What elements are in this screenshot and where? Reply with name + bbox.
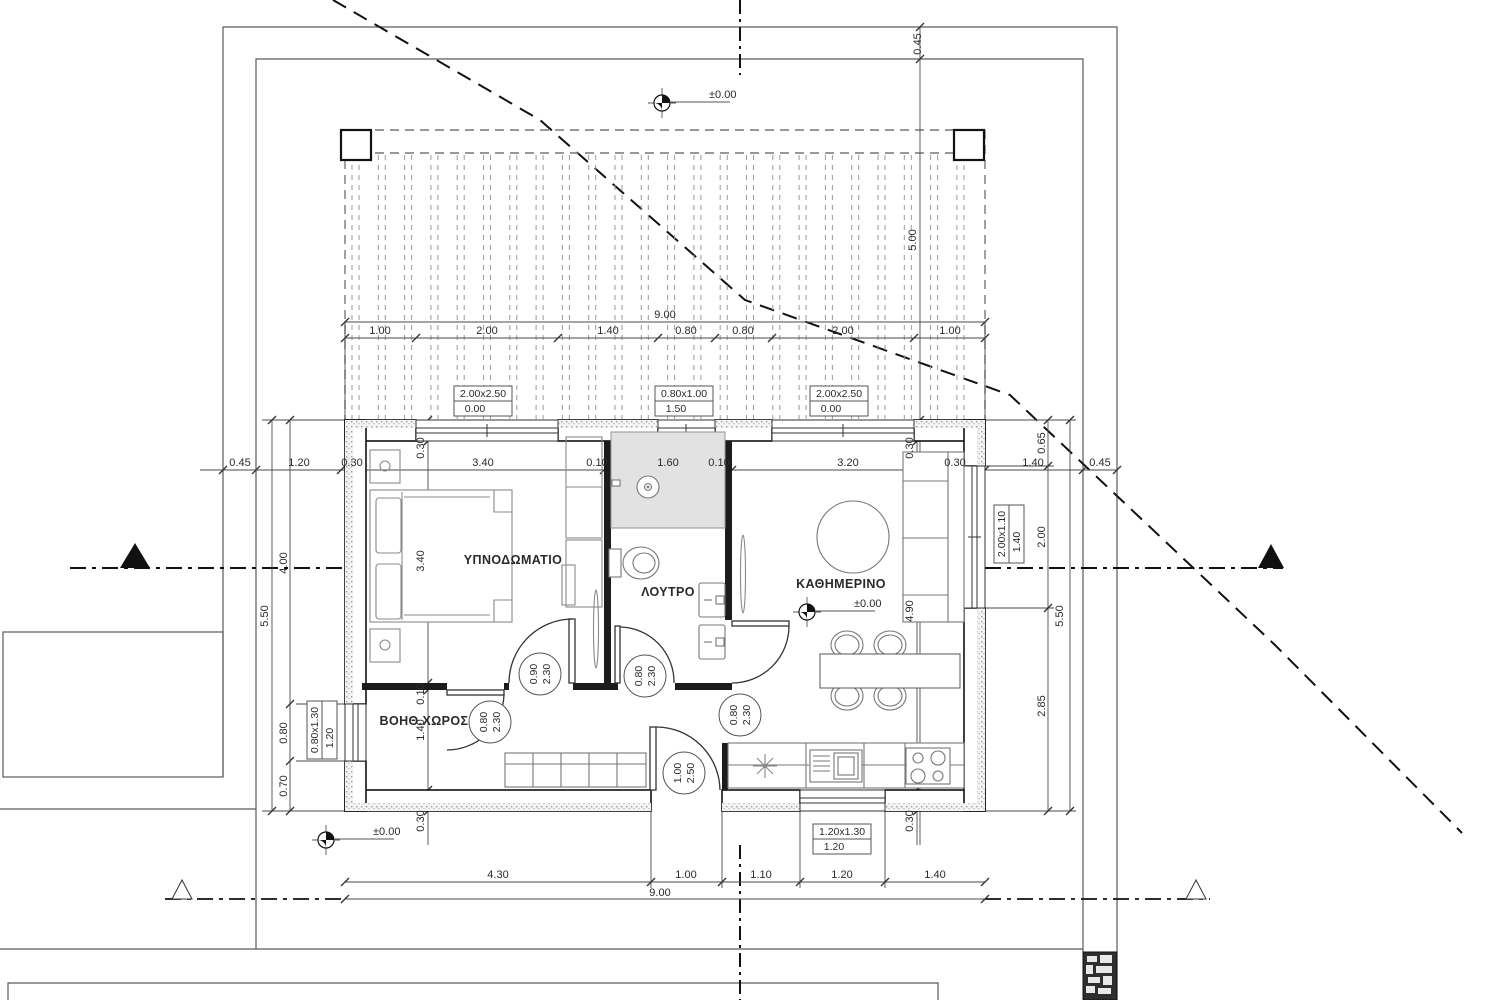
dim-left-2: 0.80 — [278, 722, 290, 743]
window-tag-bottom: 1.20x1.301.20 — [813, 824, 871, 854]
window-left — [345, 704, 366, 761]
dim-top-4: 0.80 — [675, 325, 696, 337]
room-bedroom: ΥΠΝΟΔΩΜΑΤΙΟ — [464, 553, 562, 567]
window-top-1 — [416, 420, 558, 441]
furniture — [370, 432, 964, 788]
dim-intR-3: 0.30 — [904, 810, 916, 831]
window-tag-left: 0.80x1.301.20 — [307, 701, 337, 759]
door-tag-auxiliary: 0.802.30 — [469, 701, 511, 743]
window-tag-top-3-size: 2.00x2.50 — [816, 388, 862, 400]
window-tag-top-3-sill: 0.00 — [821, 403, 842, 415]
window-tag-top-2-sill: 1.50 — [666, 403, 687, 415]
dim-intL-5: 0.30 — [415, 810, 427, 831]
window-tag-right-sill: 1.40 — [1011, 532, 1023, 553]
window-tag-top-3: 2.00x2.500.00 — [810, 386, 868, 416]
dim-main-3: 0.30 — [341, 457, 362, 469]
window-tag-left-size: 0.80x1.30 — [309, 707, 321, 753]
sliding-panel-living — [741, 535, 746, 613]
dim-left-total: 5.50 — [259, 605, 271, 626]
section-marker-right — [1186, 880, 1206, 899]
sink-1 — [699, 583, 725, 617]
window-top-3 — [772, 420, 914, 441]
dim-main-8: 3.20 — [837, 457, 858, 469]
window-tag-top-1-size: 2.00x2.50 — [460, 388, 506, 400]
aux-closet — [505, 753, 646, 787]
dim-boundary: 0.45 — [912, 33, 924, 54]
dim-top-total: 9.00 — [654, 309, 675, 321]
dim-intR-1: 0.30 — [904, 437, 916, 458]
dim-main-1: 0.45 — [229, 457, 250, 469]
room-living: ΚΑΘΗΜΕΡΙΝΟ — [796, 577, 886, 591]
sliding-panel-bedroom — [594, 590, 599, 668]
window-tag-bottom-size: 1.20x1.30 — [819, 826, 865, 838]
pergola-column-right — [954, 130, 984, 160]
level-marker-site-bottom-label: ±0.00 — [373, 826, 400, 838]
window-tag-left-sill: 1.20 — [324, 728, 336, 749]
room-bathroom: ΛΟΥΤΡΟ — [641, 585, 695, 599]
pergola-column-left — [341, 130, 371, 160]
door-tag-bathroom-width: 0.80 — [633, 666, 645, 687]
section-line-a — [70, 543, 1284, 568]
door-tag-entrance-width: 1.00 — [672, 763, 684, 784]
dim-main-5: 0.10 — [586, 457, 607, 469]
kitchen-counter — [728, 743, 964, 788]
toilet — [609, 547, 659, 579]
door-tag-bathroom-height: 2.30 — [646, 666, 658, 687]
dim-main-6: 1.60 — [657, 457, 678, 469]
door-tag-auxiliary-height: 2.30 — [491, 712, 503, 733]
door-tag-entrance-height: 2.50 — [685, 763, 697, 784]
dim-main-2: 1.20 — [288, 457, 309, 469]
dim-top-6: 2.00 — [832, 325, 853, 337]
window-tag-top-2: 0.80x1.001.50 — [655, 386, 713, 416]
dim-left-3: 0.70 — [278, 775, 290, 796]
window-tag-top-1: 2.00x2.500.00 — [454, 386, 512, 416]
level-marker-site-bottom: ±0.00 — [312, 825, 400, 855]
window-tag-top-2-size: 0.80x1.00 — [661, 388, 707, 400]
level-marker-site-top: ±0.00 — [648, 88, 736, 118]
pergola-beams — [352, 155, 964, 419]
door-tag-auxiliary-width: 0.80 — [478, 712, 490, 733]
pergola — [341, 130, 985, 419]
neighbor-plot — [3, 632, 223, 777]
floor-plan-drawing: 2.00x2.500.000.80x1.001.502.00x2.500.002… — [0, 0, 1500, 1000]
door-tag-bathroom: 0.802.30 — [624, 655, 666, 697]
dim-top-2: 2.00 — [476, 325, 497, 337]
dim-intL-2: 3.40 — [415, 550, 427, 571]
dim-bot-3: 1.10 — [750, 869, 771, 881]
sink-2 — [699, 625, 725, 659]
dim-intR-2: 4.90 — [904, 600, 916, 621]
door-tag-bedroom-height: 2.30 — [541, 664, 553, 685]
dining-set — [820, 631, 960, 710]
nightstand-bottom — [370, 629, 400, 662]
round-table — [817, 501, 889, 573]
door-tag-bedroom: 0.902.30 — [519, 653, 561, 695]
dim-left-1: 4.00 — [278, 552, 290, 573]
wall-stub-entrance — [722, 743, 728, 790]
dim-intL-1: 0.30 — [415, 437, 427, 458]
section-marker-left — [172, 880, 192, 899]
dim-main-4: 3.40 — [472, 457, 493, 469]
kitchen-sink-unit — [810, 750, 862, 782]
sofa — [903, 452, 964, 622]
window-tag-bottom-sill: 1.20 — [824, 841, 845, 853]
level-marker-site-top-label: ±0.00 — [709, 89, 736, 101]
dim-right-2: 2.00 — [1036, 526, 1048, 547]
door-living — [732, 621, 789, 683]
dim-top-3: 1.40 — [597, 325, 618, 337]
dim-main-7: 0.10 — [708, 457, 729, 469]
door-tag-entrance: 1.002.50 — [663, 752, 705, 794]
dim-bot-2: 1.00 — [675, 869, 696, 881]
cooktop — [906, 748, 950, 784]
dim-top-5: 0.80 — [732, 325, 753, 337]
dim-main-9: 0.30 — [944, 457, 965, 469]
dim-bot-1: 4.30 — [487, 869, 508, 881]
stone-wall-block — [1083, 952, 1117, 1000]
section-arrow-left — [120, 543, 150, 568]
nightstand-top — [370, 450, 400, 483]
dim-bot-total: 9.00 — [649, 887, 670, 899]
site-road-edge — [8, 983, 938, 1000]
dim-main-11: 0.45 — [1089, 457, 1110, 469]
window-tag-right: 2.00x1.101.40 — [994, 505, 1024, 563]
window-tag-right-size: 2.00x1.10 — [996, 511, 1008, 557]
window-right — [964, 466, 985, 608]
door-tag-bedroom-width: 0.90 — [528, 664, 540, 685]
wall-aux-top-right — [573, 683, 611, 690]
window-kitchen — [800, 790, 885, 811]
wall-aux-top-left — [362, 683, 447, 690]
dim-right-3: 2.85 — [1036, 695, 1048, 716]
door-tag-living: 0.802.30 — [719, 694, 761, 736]
door-tag-living-height: 2.30 — [741, 705, 753, 726]
room-auxiliary: ΒΟΗΘ.ΧΩΡΟΣ — [380, 714, 469, 728]
level-marker-living-label: ±0.00 — [854, 598, 881, 610]
dim-top-1: 1.00 — [369, 325, 390, 337]
dim-right-1: 0.65 — [1036, 432, 1048, 453]
section-arrow-right — [1258, 544, 1284, 568]
dim-right-total: 5.50 — [1054, 605, 1066, 626]
window-tag-top-1-sill: 0.00 — [465, 403, 486, 415]
wall-bathroom-bottom — [675, 683, 732, 690]
section-line-b — [165, 880, 1210, 899]
dim-top-7: 1.00 — [939, 325, 960, 337]
door-tag-living-width: 0.80 — [728, 705, 740, 726]
level-markers: ±0.00±0.00±0.00 — [312, 88, 881, 855]
shower — [611, 432, 725, 528]
dim-bot-5: 1.40 — [924, 869, 945, 881]
floor-plan-canvas: 2.00x2.500.000.80x1.001.502.00x2.500.002… — [0, 0, 1500, 1000]
dim-bot-4: 1.20 — [831, 869, 852, 881]
dim-setback: 5.00 — [907, 229, 919, 250]
dim-main-10: 1.40 — [1022, 457, 1043, 469]
level-marker-living: ±0.00 — [793, 597, 881, 627]
dim-intL-3: 0.10 — [415, 683, 427, 704]
